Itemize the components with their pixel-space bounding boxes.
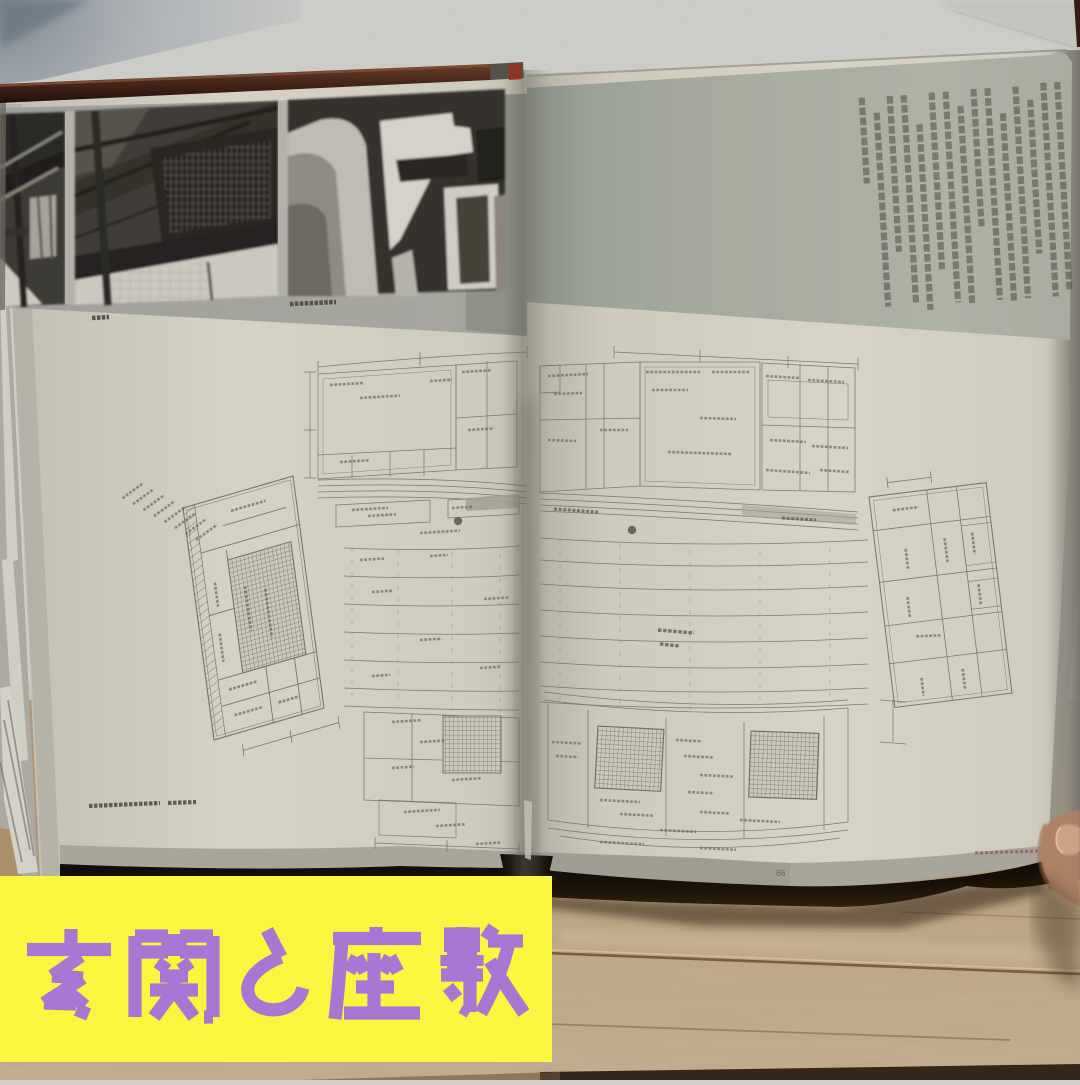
svg-text:66: 66 xyxy=(776,868,786,878)
